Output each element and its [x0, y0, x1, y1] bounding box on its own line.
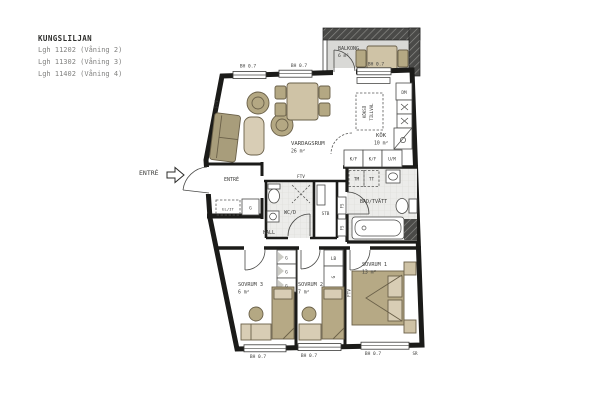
label-kokso: KÖKSÖ	[362, 105, 367, 118]
label-um: U/M	[388, 157, 396, 162]
balcony-chair	[356, 50, 366, 67]
dining-table	[287, 83, 318, 120]
label-bh: BH 0.7	[291, 63, 308, 69]
toilet-tank	[409, 199, 417, 213]
entrance-label: ENTRÉ	[139, 168, 159, 177]
room-label-stb: STB	[322, 211, 330, 217]
floor-plan-page: KUNGSLILJAN Lgh 11202 (Våning 2) Lgh 113…	[0, 0, 600, 400]
room-label-wcd: WC/D	[284, 210, 296, 216]
stb-shelf	[317, 185, 325, 205]
dining-chair	[319, 86, 330, 99]
label-g: G	[285, 270, 288, 276]
dining-chair	[275, 103, 286, 116]
label-fs: FS	[340, 203, 345, 208]
desk	[241, 324, 271, 340]
label-bh: BH 0.7	[301, 353, 318, 359]
dining-chair	[275, 86, 286, 99]
sofa	[209, 113, 241, 163]
toilet-tank	[268, 184, 280, 189]
wc-sink	[267, 211, 279, 222]
label-ftv: FTV	[347, 289, 353, 297]
label-g: G	[249, 206, 252, 212]
label-lb: LB	[331, 256, 337, 262]
balcony-door-opening	[333, 68, 356, 76]
room-label-sovrum3: SOVRUM 3	[238, 282, 263, 288]
room-label-sovrum2: SOVRUM 2	[298, 282, 323, 288]
label-g: G	[285, 256, 288, 262]
label-kf: K/F	[350, 157, 358, 162]
label-dm: DM	[401, 90, 407, 96]
room-label-vardagsrum: VARDAGSRUM	[291, 141, 325, 147]
desk-chair	[302, 307, 316, 321]
label-bh: BH 0.7	[240, 64, 257, 70]
desk-chair	[249, 307, 263, 321]
pillow	[274, 289, 292, 299]
label-bh: BH 0.7	[368, 62, 385, 68]
room-label-bad: BAD/TVÄTT	[360, 198, 387, 205]
kitchen-window-bench	[357, 78, 390, 84]
nightstand	[404, 262, 416, 275]
room-area-sovrum2: 7 m²	[298, 290, 310, 296]
label-elit: EL/IT	[222, 207, 234, 212]
label-ftv: FTV	[297, 174, 305, 180]
toilet-bowl	[269, 189, 280, 203]
room-label-sovrum1: SOVRUM 1	[362, 262, 387, 268]
room-area-sovrum1: 13 m²	[362, 270, 377, 276]
pillow	[324, 289, 342, 299]
label-kf: K/F	[369, 157, 377, 162]
entry-door-opening	[202, 167, 212, 194]
label-bh: BH 0.7	[365, 351, 382, 357]
shaft	[404, 219, 417, 240]
nightstand	[404, 320, 416, 333]
label-tt: TT	[369, 177, 375, 183]
balcony-chair	[398, 50, 408, 67]
label-g: G	[285, 284, 288, 290]
pillow	[388, 300, 402, 321]
label-bh: BH 0.7	[250, 354, 267, 360]
toilet-bowl	[396, 199, 408, 214]
label-sr: SR	[412, 351, 418, 356]
floor-plan-drawing: BALKONG 6 m² VARDAGSRUM 26 m² KÖK 10 m² …	[0, 0, 600, 400]
label-g: G	[331, 275, 337, 278]
desk	[299, 324, 321, 340]
label-ftv: FTV	[214, 100, 220, 108]
room-label-balkong: BALKONG	[338, 46, 359, 52]
label-fs: FS	[340, 225, 345, 230]
bath-sink	[386, 170, 400, 183]
entrance-arrow-icon	[167, 168, 184, 183]
coffee-table	[244, 117, 264, 155]
room-area-sovrum3: 6 m²	[238, 290, 250, 296]
balcony-north-wall	[323, 28, 420, 40]
armchair	[247, 92, 269, 114]
room-label-entre: ENTRÉ	[224, 175, 239, 183]
room-area-kok: 10 m²	[374, 141, 389, 147]
room-area-balkong: 6 m²	[338, 53, 349, 59]
label-kokso-tillval: TILLVAL	[369, 103, 374, 121]
room-area-vardagsrum: 26 m²	[291, 149, 306, 155]
dining-chair	[319, 103, 330, 116]
room-label-kok: KÖK	[376, 132, 387, 139]
label-tm: TM	[354, 177, 360, 183]
room-label-hall: HALL	[263, 230, 275, 236]
